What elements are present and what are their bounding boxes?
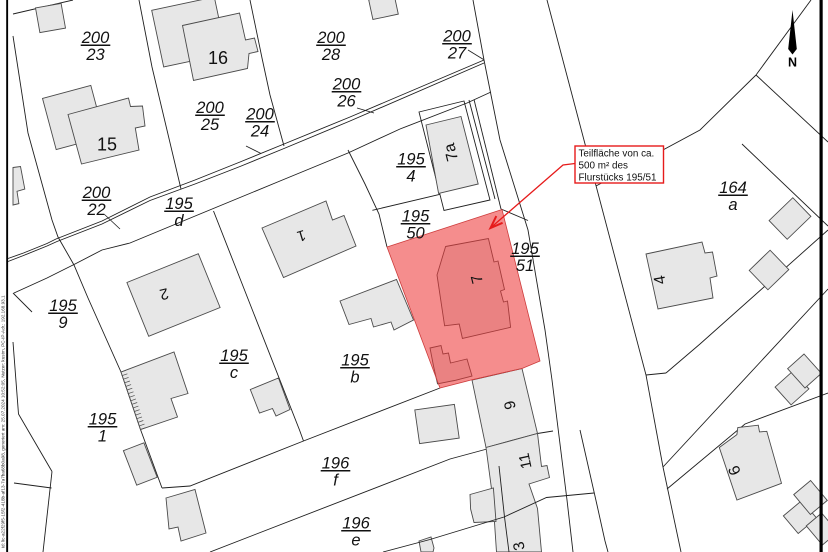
svg-text:200: 200 [245, 106, 274, 124]
svg-text:196: 196 [322, 455, 350, 473]
svg-text:195: 195 [397, 151, 425, 169]
svg-text:28: 28 [321, 46, 341, 64]
svg-text:195: 195 [49, 297, 77, 315]
svg-text:9: 9 [58, 314, 67, 332]
svg-text:26: 26 [336, 92, 356, 110]
svg-text:id: lic-a22f29f5-15f2-418b-af1: id: lic-a22f29f5-15f2-418b-af13-7a7ba68b… [1, 295, 6, 548]
svg-text:164: 164 [719, 179, 747, 197]
svg-text:1: 1 [98, 427, 107, 445]
svg-text:d: d [174, 212, 184, 230]
svg-text:15: 15 [97, 135, 117, 155]
svg-text:Teilfläche von ca.: Teilfläche von ca. [579, 148, 655, 159]
svg-text:N: N [788, 56, 797, 70]
svg-text:16: 16 [208, 48, 228, 68]
svg-text:195: 195 [220, 347, 248, 365]
svg-text:200: 200 [81, 29, 110, 47]
svg-text:24: 24 [250, 122, 269, 140]
svg-text:23: 23 [85, 46, 105, 64]
svg-text:c: c [230, 364, 239, 382]
svg-text:27: 27 [447, 44, 467, 62]
svg-text:195: 195 [341, 352, 369, 370]
svg-text:200: 200 [195, 99, 224, 117]
svg-text:200: 200 [316, 29, 345, 47]
svg-text:195: 195 [89, 411, 117, 429]
svg-text:195: 195 [402, 208, 430, 226]
svg-text:25: 25 [200, 116, 220, 134]
svg-text:200: 200 [82, 184, 111, 202]
svg-text:200: 200 [442, 28, 471, 46]
svg-text:Flurstücks 195/51: Flurstücks 195/51 [579, 172, 657, 183]
svg-text:4: 4 [406, 167, 415, 185]
svg-text:195: 195 [165, 195, 193, 213]
svg-text:195: 195 [511, 240, 539, 258]
svg-text:b: b [350, 368, 359, 386]
svg-text:e: e [351, 531, 360, 549]
svg-text:500 m² des: 500 m² des [579, 160, 628, 171]
svg-text:22: 22 [86, 201, 105, 219]
svg-text:196: 196 [342, 515, 370, 533]
svg-text:a: a [728, 196, 737, 214]
svg-text:51: 51 [516, 257, 534, 275]
svg-text:200: 200 [332, 76, 361, 94]
svg-text:50: 50 [406, 224, 425, 242]
